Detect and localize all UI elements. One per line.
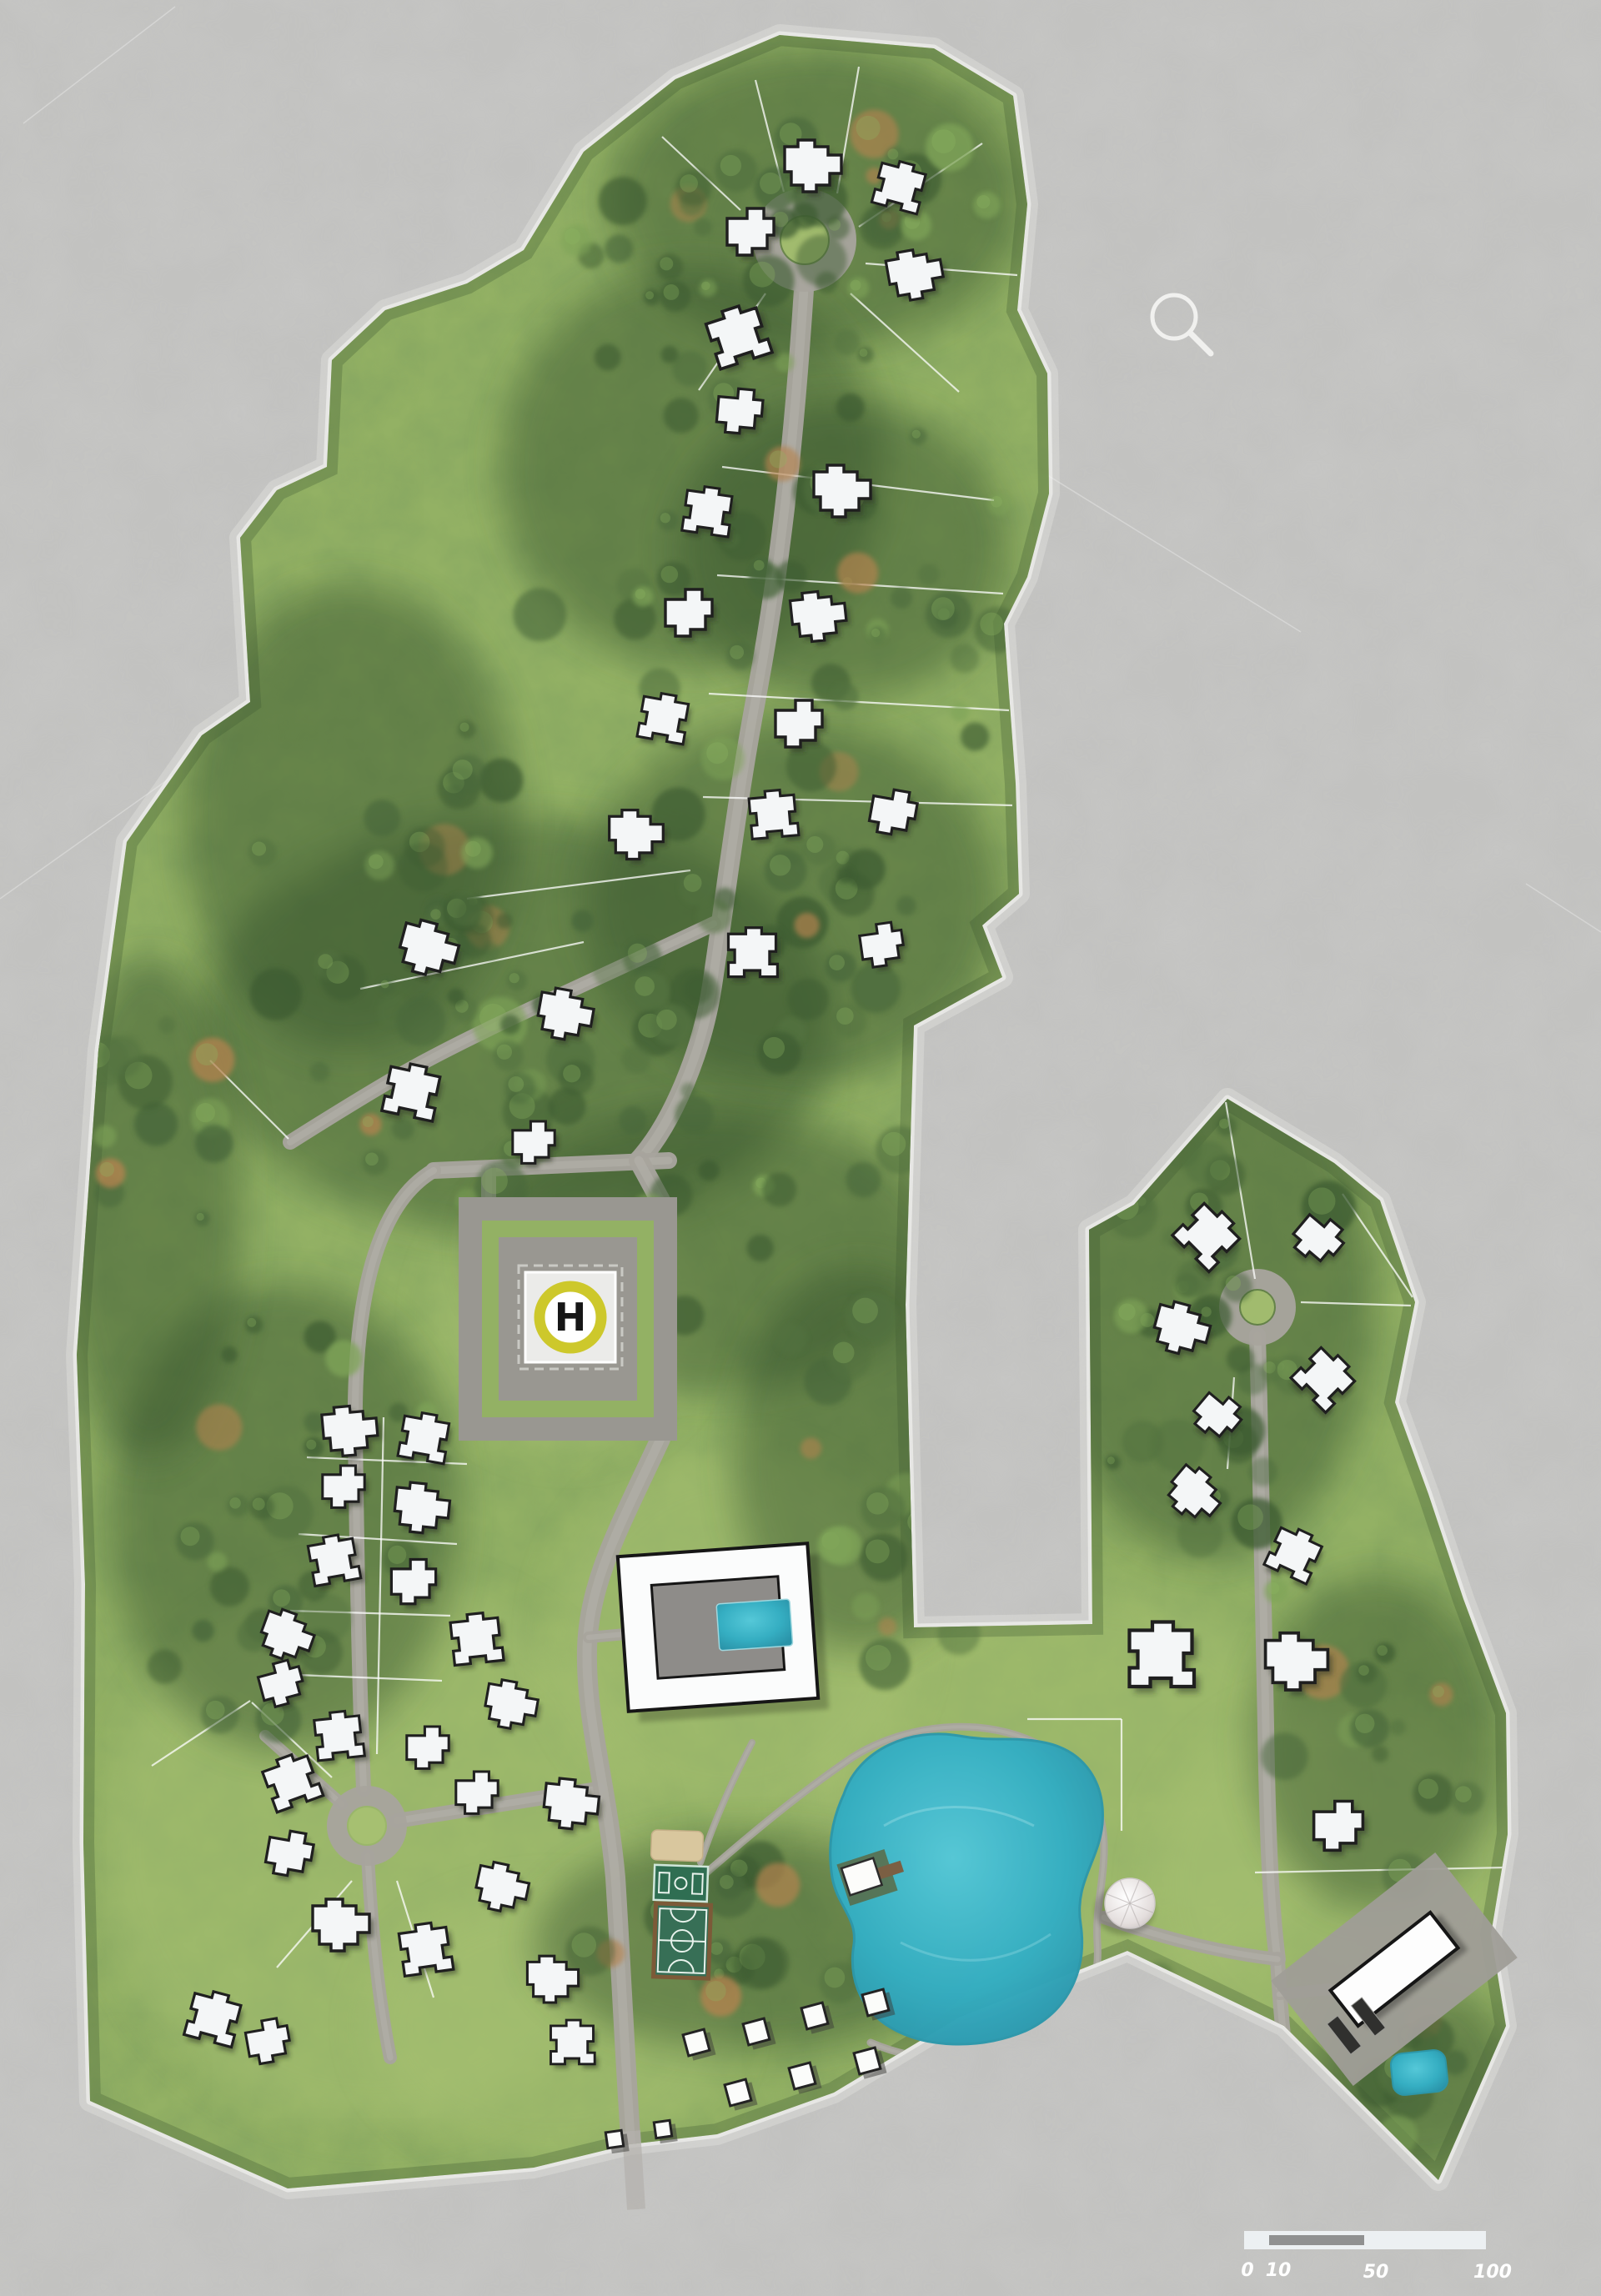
tree-highlight	[196, 1043, 218, 1065]
house-roof	[1130, 1622, 1195, 1687]
tree-highlight	[197, 1213, 204, 1221]
road-entrance-stub	[631, 2131, 636, 2209]
mini-court	[654, 1865, 708, 1902]
tree-highlight	[710, 1942, 723, 1954]
tree	[661, 346, 679, 363]
tree-highlight	[1433, 1686, 1444, 1697]
tree-highlight	[881, 1132, 906, 1156]
tree	[158, 1016, 176, 1034]
tree-highlight	[770, 450, 787, 468]
pool-complex	[618, 1542, 829, 1722]
cabin-roof	[743, 2018, 770, 2045]
tree	[836, 394, 865, 422]
tree-highlight	[180, 1526, 199, 1546]
tree-highlight	[99, 1162, 114, 1177]
tree-highlight	[866, 1492, 889, 1515]
tree-highlight	[508, 1076, 524, 1092]
tree-highlight	[763, 1037, 785, 1059]
tree	[250, 968, 302, 1020]
tree-highlight	[851, 280, 861, 291]
cabin-roof	[725, 2079, 751, 2106]
tree-highlight	[754, 560, 765, 571]
scale-label-100: 100	[1473, 2262, 1512, 2283]
tree-highlight	[460, 723, 469, 732]
tree-highlight	[1355, 1714, 1374, 1733]
house-footprint	[551, 2020, 599, 2068]
tree	[1248, 1457, 1277, 1486]
tree	[683, 975, 712, 1004]
tree-highlight	[836, 1007, 854, 1025]
swimming-pool	[716, 1599, 793, 1651]
tree	[846, 1162, 881, 1197]
tree-highlight	[369, 855, 384, 870]
cabin-roof	[854, 2048, 881, 2074]
tree	[208, 1552, 228, 1572]
helipad-letter: H	[555, 1295, 587, 1340]
tree-highlight	[770, 855, 790, 875]
tree-highlight	[1219, 1119, 1229, 1129]
tree	[851, 1592, 879, 1620]
tree	[399, 843, 448, 892]
house-roof	[729, 928, 778, 977]
gate-booth-roof	[605, 2130, 623, 2148]
tree	[787, 979, 829, 1020]
tree-highlight	[701, 282, 710, 290]
house-roof	[551, 2020, 595, 2064]
tree	[694, 218, 712, 237]
tree-highlight	[497, 1045, 512, 1060]
tree	[148, 1649, 182, 1683]
tree	[592, 947, 635, 990]
tree-highlight	[318, 954, 333, 969]
tree	[500, 1015, 520, 1035]
tree-highlight	[866, 1645, 891, 1671]
cabin-roof	[862, 1989, 889, 2016]
tree-highlight	[806, 836, 823, 853]
tree	[1227, 1345, 1254, 1372]
tree	[1177, 1512, 1222, 1557]
tree-highlight	[720, 1875, 734, 1889]
tree	[837, 553, 878, 594]
road-surface-pool-stub	[589, 1634, 625, 1637]
tree-highlight	[572, 1933, 597, 1958]
tree	[196, 1404, 242, 1450]
tree	[864, 206, 901, 243]
tree	[950, 644, 979, 673]
tree-highlight	[388, 1546, 406, 1564]
tree	[775, 353, 795, 372]
tree	[448, 891, 484, 927]
tree-highlight	[931, 129, 956, 153]
tree-highlight	[465, 841, 481, 857]
tree	[961, 722, 989, 750]
tree	[364, 800, 400, 836]
tree-highlight	[509, 973, 519, 983]
tree-highlight	[1308, 1187, 1336, 1215]
tree-highlight	[206, 1701, 225, 1720]
tree-highlight	[1377, 1645, 1388, 1656]
tree-highlight	[365, 1152, 379, 1166]
tree-highlight	[825, 1968, 846, 1988]
tree-highlight	[381, 980, 389, 989]
tree	[1261, 1733, 1308, 1781]
tree-highlight	[720, 155, 741, 176]
tree-highlight	[565, 228, 580, 244]
tree-highlight	[363, 1116, 374, 1127]
tree	[675, 1095, 713, 1134]
tree	[192, 1620, 214, 1642]
tree-highlight	[931, 597, 955, 620]
gate-booth-roof	[654, 2120, 671, 2138]
tree-highlight	[991, 496, 1002, 508]
tree	[571, 910, 593, 932]
tree	[195, 1125, 233, 1163]
tree-highlight	[980, 613, 1003, 636]
tree-highlight	[273, 1589, 290, 1607]
tree-highlight	[680, 174, 698, 193]
tree-highlight	[660, 513, 670, 523]
tree	[836, 866, 853, 883]
tree	[834, 329, 860, 355]
cabin-roof	[801, 2003, 828, 2029]
tree-highlight	[829, 955, 845, 970]
tree-highlight	[705, 1981, 725, 2001]
tree	[740, 1938, 790, 1988]
tree	[496, 913, 512, 929]
tree-highlight	[976, 195, 990, 208]
tree-highlight	[1118, 1303, 1135, 1320]
tree-highlight	[196, 1103, 215, 1122]
tree-highlight	[852, 1298, 878, 1324]
house-footprint	[729, 928, 782, 982]
tree-highlight	[706, 742, 728, 764]
tree	[896, 896, 916, 916]
sand-play-area	[650, 1830, 703, 1862]
tree	[513, 588, 566, 641]
tree-highlight	[887, 148, 898, 159]
tree	[1372, 1746, 1388, 1762]
tree-highlight	[856, 116, 881, 140]
tree-highlight	[866, 1539, 890, 1563]
small-pond	[1390, 2049, 1449, 2097]
tree	[94, 1125, 117, 1147]
tree	[221, 1346, 238, 1363]
tree	[951, 703, 970, 722]
scale-bar-segment	[1269, 2235, 1364, 2245]
tree	[664, 398, 699, 433]
tree-highlight	[660, 566, 678, 584]
tree-highlight	[481, 1168, 508, 1195]
tree	[822, 1526, 861, 1566]
tree-highlight	[1358, 1665, 1369, 1676]
tree-highlight	[912, 430, 921, 439]
tree-highlight	[229, 1497, 240, 1508]
tree-highlight	[1226, 1276, 1241, 1291]
tree	[1184, 1140, 1230, 1186]
tree	[595, 344, 621, 371]
tree	[392, 1117, 414, 1140]
tree-highlight	[684, 874, 702, 892]
tree	[599, 177, 647, 225]
tree	[756, 1862, 800, 1907]
tree	[800, 1438, 821, 1459]
house-footprint	[1130, 1622, 1200, 1693]
tree	[747, 1235, 774, 1261]
tree	[831, 683, 859, 710]
tree	[878, 1617, 896, 1636]
tree	[622, 1045, 651, 1075]
tree	[605, 234, 633, 263]
masterplan-site-plan: H 0 10 50 100	[0, 0, 1601, 2296]
tree-highlight	[306, 1440, 316, 1450]
tree	[210, 1567, 249, 1607]
tree	[309, 1062, 329, 1082]
tree	[796, 235, 847, 286]
scale-label-0: 0	[1241, 2260, 1253, 2281]
tree	[891, 587, 912, 609]
tree	[851, 963, 901, 1013]
tree	[101, 1036, 143, 1078]
tree	[699, 1161, 720, 1181]
southwest-roundabout-island	[349, 1807, 385, 1844]
tree-highlight	[760, 173, 781, 194]
tree-highlight	[656, 1010, 677, 1030]
tree-highlight	[664, 284, 680, 300]
tree-highlight	[1237, 1504, 1263, 1530]
tree-highlight	[871, 629, 880, 637]
tree-highlight	[1418, 1779, 1438, 1799]
tree-highlight	[453, 759, 473, 780]
cabin-roof	[789, 2063, 816, 2089]
tree	[448, 988, 464, 1005]
tree-highlight	[660, 257, 673, 270]
tree	[1152, 1419, 1205, 1472]
tree	[794, 913, 819, 938]
scale-label-10: 10	[1266, 2260, 1292, 2281]
tree	[775, 560, 807, 592]
tree-highlight	[563, 1065, 580, 1082]
tree-highlight	[1455, 1786, 1472, 1802]
tree-highlight	[1267, 1582, 1279, 1594]
tree-highlight	[247, 1318, 256, 1327]
tree-highlight	[833, 1342, 855, 1364]
tree-highlight	[730, 645, 744, 659]
tree-highlight	[645, 291, 654, 299]
tree	[396, 996, 446, 1046]
tree-highlight	[430, 909, 441, 920]
scale-label-50: 50	[1363, 2262, 1389, 2283]
tree	[325, 1340, 362, 1376]
tree-highlight	[635, 976, 655, 996]
tree	[762, 1172, 796, 1206]
tree-highlight	[253, 1498, 265, 1511]
tree	[775, 1323, 807, 1355]
tree-highlight	[635, 589, 645, 599]
tree	[1390, 1719, 1406, 1735]
cabin-roof	[683, 2029, 710, 2056]
tree-highlight	[1107, 1456, 1115, 1464]
tree-highlight	[1202, 1306, 1212, 1316]
tree-highlight	[252, 842, 266, 856]
tree-highlight	[750, 262, 775, 288]
tree	[619, 1106, 647, 1135]
tree-highlight	[860, 348, 868, 357]
tree	[918, 564, 940, 585]
